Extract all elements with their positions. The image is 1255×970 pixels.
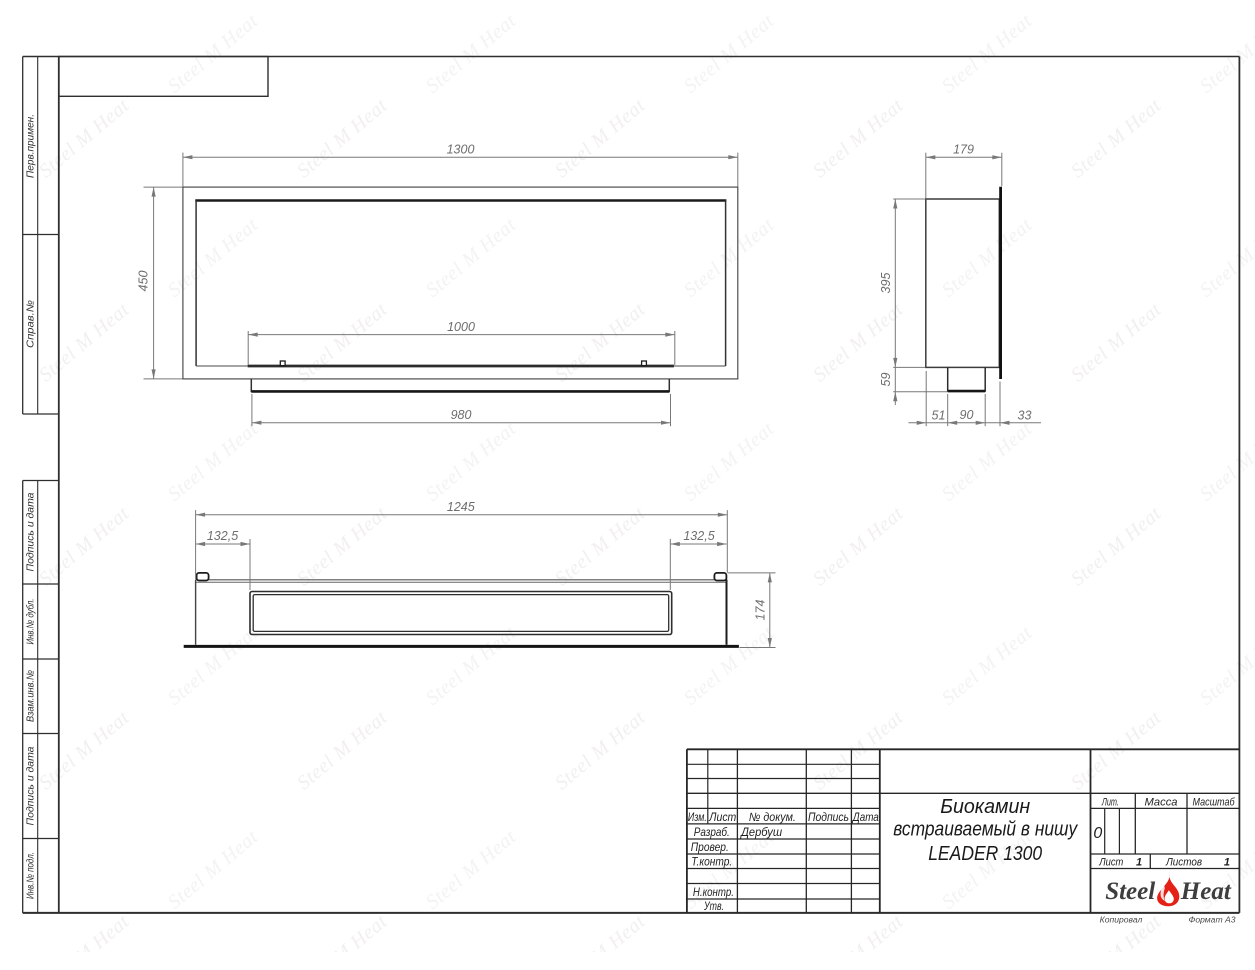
svg-text:1000: 1000 [447,320,475,334]
svg-text:Провер.: Провер. [691,840,729,854]
svg-text:90: 90 [960,408,974,422]
svg-text:Утв.: Утв. [703,899,724,913]
svg-text:Масштаб: Масштаб [1193,797,1236,809]
svg-text:Инв.№ дубл.: Инв.№ дубл. [24,599,36,645]
svg-text:Лит.: Лит. [1101,797,1119,809]
svg-text:1245: 1245 [447,500,475,514]
svg-text:980: 980 [451,408,472,422]
svg-text:179: 179 [953,143,974,157]
svg-text:Лист: Лист [708,810,736,824]
svg-text:Разраб.: Разраб. [694,825,730,839]
svg-text:Инв.№ подл.: Инв.№ подл. [25,852,36,899]
svg-text:1: 1 [1136,857,1142,869]
svg-text:Справ.№: Справ.№ [25,300,36,348]
svg-text:Копировал: Копировал [1100,914,1143,924]
svg-text:0: 0 [1093,825,1102,842]
svg-text:395: 395 [879,273,893,294]
svg-text:Перв.примен.: Перв.примен. [25,114,36,178]
svg-text:Подпись и дата: Подпись и дата [25,492,36,571]
svg-text:Подпись и дата: Подпись и дата [25,746,36,825]
svg-text:встраиваемый в нишу: встраиваемый в нишу [893,819,1078,841]
svg-text:59: 59 [879,373,893,387]
svg-text:132,5: 132,5 [683,529,714,543]
svg-text:Steel: Steel [1105,878,1155,905]
svg-text:1: 1 [1224,857,1230,869]
svg-text:132,5: 132,5 [207,529,238,543]
svg-text:174: 174 [754,600,768,621]
svg-text:33: 33 [1018,408,1032,422]
svg-text:Масса: Масса [1145,797,1178,809]
svg-text:Т.контр.: Т.контр. [691,855,732,869]
svg-text:1300: 1300 [447,143,475,157]
svg-text:Биокамин: Биокамин [940,796,1030,818]
svg-text:Лист: Лист [1098,857,1123,869]
svg-text:Взам.инв.№: Взам.инв.№ [25,670,36,722]
svg-text:№ докум.: № докум. [749,810,796,824]
svg-text:Подпись: Подпись [808,810,849,824]
svg-text:Дербуш: Дербуш [739,825,782,839]
svg-text:Листов: Листов [1165,857,1202,869]
svg-text:Дата: Дата [851,810,879,824]
svg-text:Heat: Heat [1180,878,1232,905]
svg-text:LEADER 1300: LEADER 1300 [928,842,1043,865]
svg-text:Формат А3: Формат А3 [1188,914,1235,924]
svg-text:450: 450 [137,271,151,292]
svg-text:Н.контр.: Н.контр. [693,885,734,899]
svg-text:51: 51 [932,408,946,422]
svg-text:Изм.: Изм. [688,810,707,824]
